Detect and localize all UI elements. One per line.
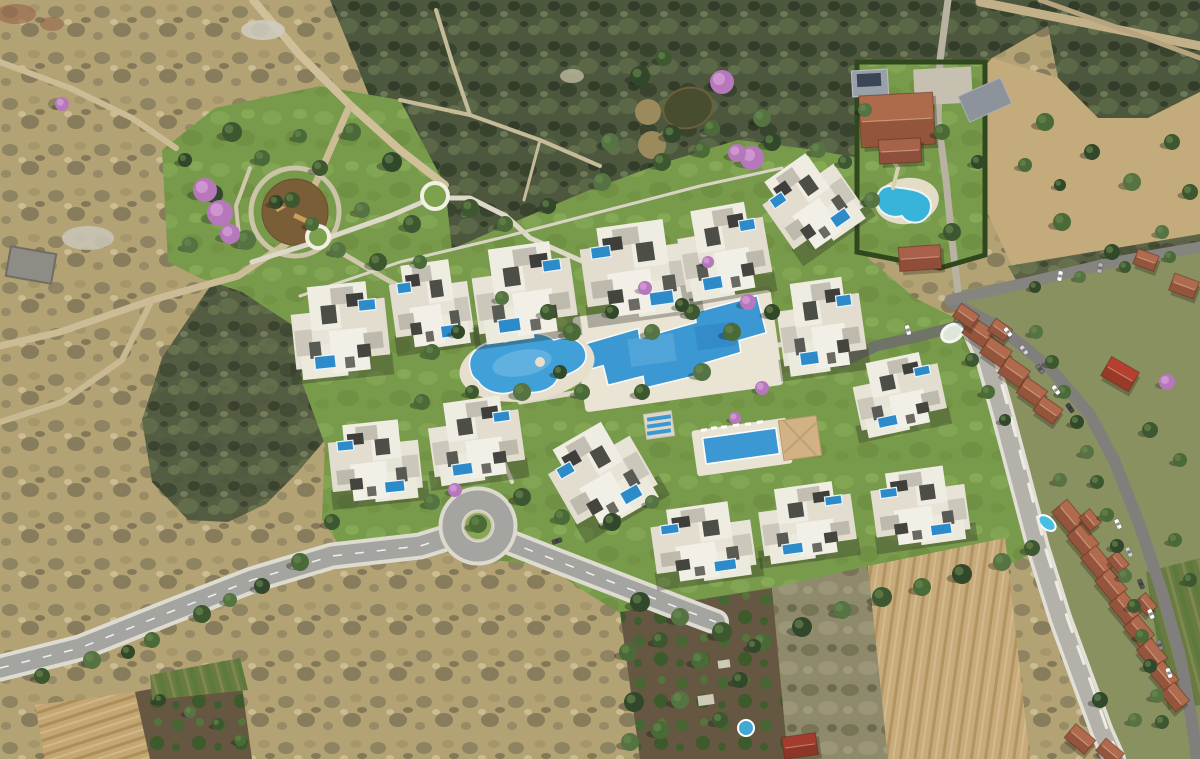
- tree-highlight: [1076, 273, 1081, 278]
- tree-highlight: [835, 603, 843, 611]
- tree-highlight: [840, 157, 846, 163]
- tree-highlight: [647, 497, 653, 503]
- tree-highlight: [576, 386, 583, 393]
- tree-highlight: [706, 122, 713, 129]
- tree-highlight: [665, 127, 673, 135]
- tree-highlight: [595, 175, 603, 183]
- tree-highlight: [467, 387, 473, 393]
- pink-tree-highlight: [757, 383, 764, 390]
- apartment-block-3-roof-pool-0: [498, 317, 522, 333]
- apartment-block-12-roof-pool-0: [714, 558, 737, 572]
- apartment-block-11-darks-4: [905, 414, 915, 425]
- rubble-north: [241, 20, 285, 40]
- tree-highlight: [499, 218, 506, 225]
- apartment-block-2-roof-pool-1: [397, 282, 412, 294]
- apartment-block-12-darks-4: [694, 566, 705, 576]
- tree-highlight: [607, 307, 613, 313]
- orchard-pool: [738, 720, 754, 736]
- apartment-block-2-darks-4: [425, 331, 434, 342]
- scene-layers: [0, 0, 1200, 759]
- pink-tree-highlight: [196, 181, 208, 193]
- tree-highlight: [542, 200, 549, 207]
- apartment-block-4-roof-pool-1: [590, 245, 611, 259]
- tree-highlight: [1092, 477, 1098, 483]
- apartment-block-13-roof-pool-0: [782, 542, 804, 555]
- tree-highlight: [655, 155, 663, 163]
- site-plan-svg: [0, 0, 1200, 759]
- tree-highlight: [225, 125, 234, 134]
- tree-highlight: [1112, 541, 1118, 547]
- apartment-block-8-darks-4: [367, 486, 377, 496]
- apartment-block-13-darks-3: [824, 531, 838, 543]
- tree-highlight: [725, 325, 733, 333]
- pink-tree-highlight: [730, 146, 739, 155]
- apartment-block-4-roof-pool-0: [649, 290, 674, 306]
- tree-highlight: [693, 653, 701, 661]
- scrub-plot-south: [772, 566, 888, 759]
- tree-highlight: [1185, 575, 1191, 581]
- apartment-block-7-roof-pool-1: [835, 294, 852, 307]
- tree-highlight: [371, 255, 379, 263]
- tree-highlight: [214, 720, 219, 725]
- tree-highlight: [749, 641, 755, 647]
- apartment-block-4-darks-4: [628, 298, 640, 311]
- tree-highlight: [955, 567, 964, 576]
- tree-highlight: [765, 135, 773, 143]
- tree-highlight: [1125, 175, 1133, 183]
- tree-highlight: [605, 515, 613, 523]
- tree-highlight: [973, 157, 979, 163]
- apartment-block-14-darks-3: [894, 523, 909, 535]
- tree-highlight: [271, 197, 277, 203]
- apartment-block-8-darks-0: [374, 438, 390, 455]
- tree-highlight: [633, 69, 642, 78]
- red-soil-patch-2: [40, 17, 64, 31]
- tree-highlight: [1001, 416, 1006, 421]
- tree-highlight: [795, 620, 804, 629]
- tree-highlight: [556, 511, 563, 518]
- apartment-block-3-darks-4: [530, 318, 541, 331]
- tree-highlight: [995, 555, 1003, 563]
- tree-highlight: [326, 516, 333, 523]
- pink-tree-highlight: [713, 73, 725, 85]
- tree-highlight: [225, 595, 231, 601]
- tree-highlight: [1144, 424, 1151, 431]
- lagoon-island: [535, 357, 545, 367]
- apartment-block-3-roof-pool-1: [542, 259, 561, 273]
- apartment-block-1-roof-pool-1: [358, 299, 376, 312]
- apartment-block-7-darks-4: [827, 352, 837, 364]
- tree-highlight: [156, 696, 161, 701]
- tree-highlight: [654, 634, 661, 641]
- tree-highlight: [936, 126, 943, 133]
- tree-highlight: [256, 580, 263, 587]
- orchard-sheds-1: [718, 659, 731, 669]
- apartment-block-8-darks-3: [350, 478, 364, 490]
- scrub-clearings-0: [635, 99, 661, 125]
- pink-tree-highlight: [1161, 376, 1169, 384]
- apartment-block-14-darks-4: [912, 530, 923, 540]
- apartment-block-13-darks-0: [787, 502, 804, 519]
- tree-highlight: [1082, 447, 1088, 453]
- tree-highlight: [621, 645, 629, 653]
- tree-highlight: [1086, 146, 1093, 153]
- apartment-block-11-darks-0: [879, 374, 896, 391]
- tree-highlight: [453, 327, 459, 333]
- tree-highlight: [356, 204, 363, 211]
- tree-highlight: [812, 144, 819, 151]
- pink-tree-highlight: [731, 414, 737, 420]
- solar-panel: [857, 73, 882, 87]
- tree-highlight: [945, 225, 953, 233]
- tree-highlight: [633, 595, 642, 604]
- rubble-mid: [560, 69, 584, 83]
- apartment-block-8-roof-pool-1: [337, 440, 354, 451]
- tree-highlight: [542, 306, 549, 313]
- apartment-block-2-darks-0: [429, 279, 444, 298]
- tree-highlight: [1026, 542, 1033, 549]
- tree-highlight: [286, 194, 293, 201]
- tree-highlight: [345, 125, 353, 133]
- tree-highlight: [85, 653, 93, 661]
- tree-highlight: [36, 670, 43, 677]
- tree-highlight: [1130, 715, 1136, 721]
- tree-highlight: [1137, 631, 1143, 637]
- house-24: [898, 244, 945, 275]
- apartment-block-8-roof-pool-0: [384, 480, 405, 493]
- tree-highlight: [295, 131, 301, 137]
- tree-highlight: [565, 325, 573, 333]
- tree-highlight: [673, 610, 681, 618]
- tree-highlight: [180, 155, 186, 161]
- tree-highlight: [1170, 535, 1176, 541]
- apartment-block-1-darks-0: [320, 305, 337, 325]
- tree-highlight: [236, 736, 241, 741]
- tree-highlight: [123, 647, 129, 653]
- apartment-block-7-darks-0: [802, 301, 818, 321]
- pink-tree-highlight: [742, 296, 750, 304]
- tree-highlight: [1166, 136, 1173, 143]
- apartment-block-12-darks-3: [675, 559, 690, 571]
- tree-highlight: [714, 714, 721, 721]
- tree-highlight: [1121, 263, 1126, 268]
- plowed-field-south: [868, 538, 1030, 759]
- tree-highlight: [715, 625, 724, 634]
- tree-highlight: [497, 293, 503, 299]
- tree-highlight: [186, 708, 191, 713]
- rubble-west: [62, 226, 114, 250]
- tree-highlight: [1157, 227, 1163, 233]
- tree-highlight: [1145, 661, 1151, 667]
- apartment-block-7-roof-pool-0: [799, 351, 819, 366]
- apartment-block-12-roof-pool-1: [660, 523, 679, 535]
- apartment-block-1-darks-3: [357, 343, 372, 357]
- apartment-block-1-roof-pool-0: [314, 355, 336, 370]
- tree-highlight: [515, 385, 523, 393]
- apartment-block-9-roof-pool-1: [493, 411, 511, 423]
- tree-highlight: [1102, 510, 1108, 516]
- apartment-block-14-roof-pool-1: [880, 487, 898, 498]
- tree-highlight: [332, 244, 339, 251]
- tree-highlight: [983, 387, 989, 393]
- apartment-block-7-darks-3: [837, 339, 850, 353]
- house-26: [878, 138, 924, 168]
- tree-highlight: [734, 674, 741, 681]
- tree-highlight: [627, 695, 636, 704]
- tree-highlight: [1166, 253, 1171, 258]
- apartment-block-5-darks-4: [730, 276, 741, 288]
- pink-tree-highlight: [223, 227, 233, 237]
- tree-highlight: [1152, 691, 1158, 697]
- tree-highlight: [471, 517, 479, 525]
- tree-highlight: [603, 135, 611, 143]
- apartment-block-12-darks-0: [702, 519, 720, 536]
- tree-highlight: [673, 693, 681, 701]
- apartment-block-13-roof-pool-1: [824, 495, 842, 506]
- apartment-block-9-darks-4: [481, 463, 491, 474]
- pink-tree-highlight: [704, 258, 710, 264]
- tree-highlight: [1055, 215, 1063, 223]
- tree-highlight: [1072, 417, 1078, 423]
- apartment-block-9-darks-0: [456, 418, 473, 436]
- tree-highlight: [653, 723, 661, 731]
- apartment-block-14-darks-0: [919, 484, 936, 501]
- tree-highlight: [860, 105, 866, 111]
- tree-highlight: [293, 555, 301, 563]
- planter-mid: [422, 183, 448, 209]
- tree-highlight: [866, 194, 873, 201]
- tree-highlight: [766, 306, 773, 313]
- tree-highlight: [623, 735, 631, 743]
- tree-highlight: [696, 144, 703, 151]
- tree-highlight: [1031, 327, 1037, 333]
- tree-highlight: [307, 219, 313, 225]
- tree-highlight: [875, 590, 884, 599]
- tree-highlight: [184, 239, 191, 246]
- tree-highlight: [1094, 694, 1101, 701]
- apartment-block-5-roof-pool-0: [702, 275, 723, 291]
- tree-highlight: [1129, 601, 1135, 607]
- tree-highlight: [1120, 571, 1126, 577]
- pink-tree-highlight: [210, 203, 223, 216]
- tree-highlight: [1106, 246, 1113, 253]
- tree-highlight: [426, 346, 433, 353]
- tree-highlight: [636, 386, 643, 393]
- apartment-block-2-darks-3: [410, 322, 422, 335]
- tree-highlight: [463, 201, 471, 209]
- tree-highlight: [755, 111, 763, 119]
- tree-highlight: [967, 355, 973, 361]
- apartment-block-4-darks-3: [607, 289, 624, 304]
- tree-highlight: [658, 52, 665, 59]
- tree-highlight: [915, 580, 923, 588]
- apartment-block-9-roof-pool-0: [452, 462, 474, 476]
- apartment-block-5-darks-3: [741, 262, 755, 277]
- tree-highlight: [677, 300, 683, 306]
- tree-highlight: [416, 396, 423, 403]
- tree-highlight: [426, 496, 433, 503]
- aerial-masterplan: [0, 0, 1200, 759]
- tree-highlight: [405, 217, 413, 225]
- tree-highlight: [1047, 357, 1053, 363]
- tree-highlight: [1038, 115, 1046, 123]
- tree-highlight: [1031, 283, 1036, 288]
- tree-highlight: [1175, 455, 1181, 461]
- pink-tree-highlight: [57, 99, 64, 106]
- apartment-block-13-darks-4: [812, 542, 823, 552]
- tree-highlight: [146, 634, 153, 641]
- tree-highlight: [385, 155, 394, 164]
- tree-highlight: [1020, 160, 1026, 166]
- pink-tree-highlight: [640, 283, 647, 290]
- tree-highlight: [415, 257, 421, 263]
- apartment-block-14-roof-pool-0: [930, 523, 952, 536]
- house-27: [782, 732, 822, 759]
- apartment-block-5-roof-pool-1: [738, 218, 755, 231]
- apartment-block-9-darks-3: [493, 451, 507, 464]
- tree-highlight: [1056, 181, 1061, 186]
- tree-highlight: [1157, 717, 1163, 723]
- apartment-block-4-darks-0: [635, 241, 655, 262]
- tree-highlight: [314, 162, 321, 169]
- tree-highlight: [1055, 475, 1061, 481]
- tree-highlight: [1184, 186, 1191, 193]
- pink-tree-highlight: [450, 485, 457, 492]
- tree-highlight: [256, 152, 263, 159]
- tree-highlight: [695, 365, 703, 373]
- tree-highlight: [195, 607, 203, 615]
- tree-highlight: [646, 326, 653, 333]
- tree-highlight: [515, 490, 523, 498]
- apartment-block-1-darks-4: [345, 356, 356, 368]
- tree-highlight: [555, 367, 561, 373]
- apartment-block-3-darks-0: [503, 266, 521, 287]
